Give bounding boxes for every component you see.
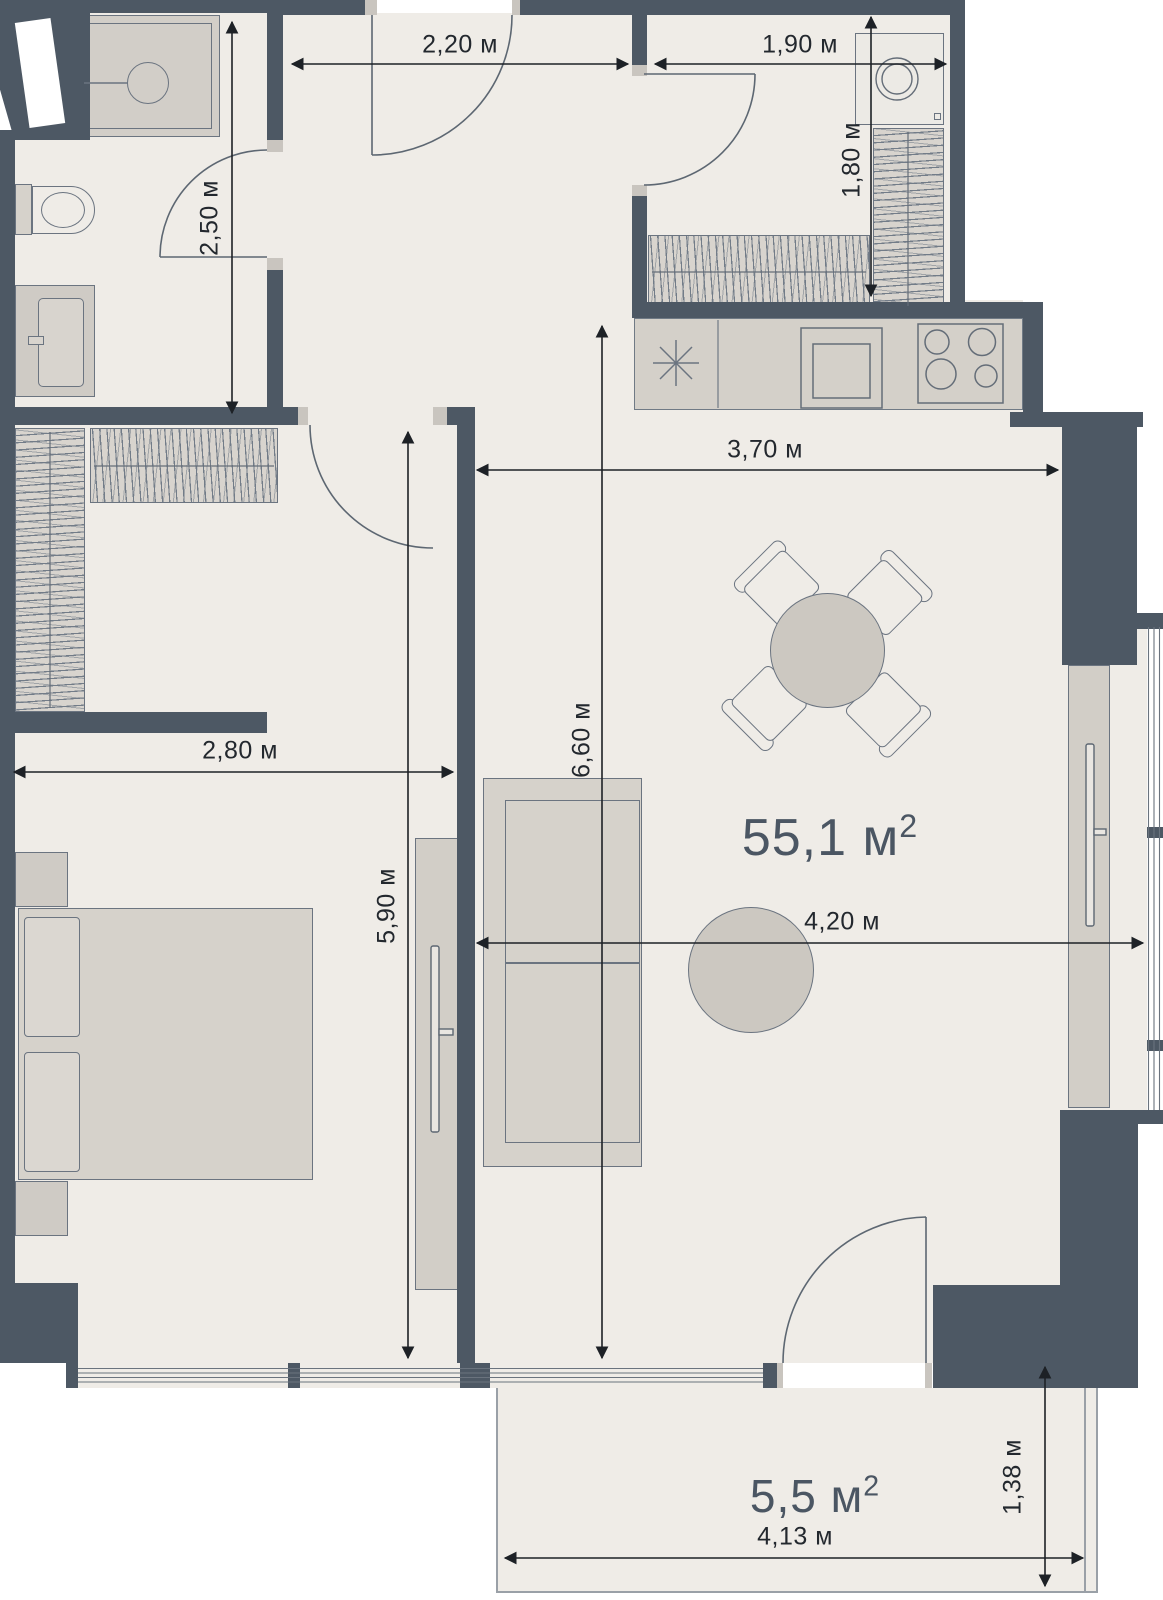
wall-laundry-east (950, 0, 965, 305)
wall-partition-head (447, 407, 475, 425)
coffee-table-pouf (688, 907, 814, 1033)
entry-door-jamb-right (512, 0, 520, 15)
wall-south-east (933, 1285, 1138, 1388)
sofa-cushion (505, 800, 640, 963)
window-mullion-2 (460, 1363, 490, 1388)
living-area-sup: 2 (899, 808, 918, 844)
cabinet-door (38, 298, 84, 387)
dimension-label-balcony-width: 4,13 м (757, 1523, 833, 1552)
living-area-label: 55,1 м2 (742, 808, 918, 868)
wall-kitchen-north (632, 302, 1043, 318)
wardrobe-closet-left (15, 428, 85, 712)
wall-laundry-west-lower (632, 196, 647, 306)
dimension-label-laundry-depth: 1,80 м (838, 122, 867, 198)
wall-west (0, 130, 15, 1363)
wall-bathroom-east-upper (267, 0, 283, 140)
closet-door-jamb-left (298, 407, 308, 425)
balcony-door-post (763, 1363, 777, 1388)
wall-north-hall-right (520, 0, 965, 15)
balcony-area-label: 5,5 м2 (750, 1469, 880, 1523)
dimension-label-laundry-width: 1,90 м (762, 31, 838, 60)
dimension-label-hallway-width: 2,20 м (422, 31, 498, 60)
floor-plan: 2,20 м 1,90 м 2,50 м 1,80 м 3,70 м 6,60 … (0, 0, 1163, 1600)
wardrobe-laundry-bottom (648, 235, 870, 310)
bed-pillow (24, 1052, 80, 1172)
balcony-door-jamb-left (777, 1363, 783, 1388)
wardrobe-laundry-right (873, 128, 944, 310)
wall-window-stub-top (1137, 613, 1163, 629)
closet-door-jamb-right (433, 407, 447, 425)
entry-door-jamb-left (365, 0, 377, 15)
dimension-label-bedroom-width: 2,80 м (202, 737, 278, 766)
wall-pillar-east-upper (1062, 424, 1137, 665)
washer-knob (934, 113, 941, 120)
cabinet-handle (28, 336, 44, 345)
floor-window-sill (78, 1363, 763, 1388)
toilet-tank (15, 184, 32, 235)
bathroom-door-jamb-bottom (267, 258, 283, 270)
shower-head-icon (127, 62, 169, 104)
wall-partition-bedroom-living (457, 425, 475, 1363)
wardrobe-closet-top (90, 428, 278, 503)
laundry-door-jamb-bottom (632, 185, 647, 196)
wall-closet-north (0, 407, 298, 425)
balcony-door-jamb-right (925, 1363, 932, 1388)
east-window-tick-2 (1147, 1040, 1163, 1051)
wall-pillar-east-lower (1060, 1110, 1138, 1286)
living-area-value: 55,1 м (742, 809, 899, 867)
sofa-cushion (505, 963, 640, 1143)
dimension-label-bathroom-depth: 2,50 м (196, 180, 225, 256)
wall-closet-bedroom (10, 712, 267, 733)
window-mullion-1 (288, 1363, 300, 1388)
toilet-seat (41, 192, 85, 228)
dining-table-icon (770, 593, 885, 708)
window-end-block-west (66, 1360, 78, 1388)
dimension-label-kitchen-width: 3,70 м (727, 436, 803, 465)
wall-bathroom-east-lower (267, 270, 283, 420)
wall-step-southwest (0, 1283, 78, 1363)
east-window-icon (1149, 627, 1160, 1110)
wall-window-stub-bottom (1137, 1110, 1163, 1124)
bed-pillow (24, 917, 80, 1037)
tv-console-bedroom (415, 838, 458, 1290)
dimension-label-living-width: 4,20 м (804, 908, 880, 937)
wall-kitchen-east (1023, 316, 1043, 414)
wall-laundry-west-upper (632, 15, 647, 65)
dimension-label-balcony-depth: 1,38 м (999, 1439, 1028, 1515)
balcony-area-sup: 2 (863, 1471, 880, 1503)
dimension-label-bedroom-depth: 5,90 м (373, 868, 402, 944)
kitchen-counter (634, 318, 1023, 410)
washing-machine-icon (855, 33, 944, 125)
wall-north-bathroom (88, 0, 268, 13)
tv-console-living (1068, 665, 1110, 1108)
dimension-label-living-depth: 6,60 м (568, 702, 597, 778)
laundry-door-jamb-top (632, 65, 647, 76)
balcony-area-value: 5,5 м (750, 1470, 863, 1522)
nightstand-bottom (15, 1181, 68, 1236)
nightstand-top (15, 852, 68, 907)
bathroom-door-jamb-top (267, 140, 283, 152)
east-window-tick-1 (1147, 827, 1163, 838)
